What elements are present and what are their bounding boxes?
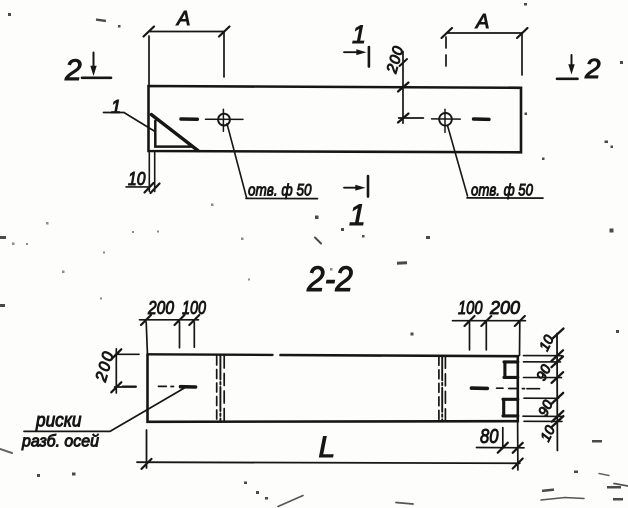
svg-text:10: 10: [128, 169, 146, 189]
svg-text:2: 2: [64, 54, 82, 87]
svg-text:A: A: [475, 11, 489, 33]
svg-text:1: 1: [352, 21, 366, 49]
svg-text:1: 1: [111, 97, 121, 117]
svg-text:80: 80: [480, 426, 499, 448]
svg-text:2-2: 2-2: [306, 260, 353, 299]
svg-text:1: 1: [349, 199, 366, 232]
svg-text:2: 2: [584, 53, 601, 84]
svg-text:L: L: [319, 431, 336, 464]
svg-text:A: A: [176, 8, 190, 30]
svg-text:100: 100: [458, 297, 483, 318]
svg-text:200: 200: [489, 297, 521, 318]
svg-text:отв. ф 50: отв. ф 50: [248, 181, 312, 200]
svg-text:разб. осей: разб. осей: [21, 433, 99, 451]
svg-text:отв. ф 50: отв. ф 50: [471, 181, 533, 200]
svg-text:риски: риски: [35, 411, 82, 432]
svg-text:200: 200: [147, 297, 174, 318]
svg-text:100: 100: [182, 297, 207, 318]
